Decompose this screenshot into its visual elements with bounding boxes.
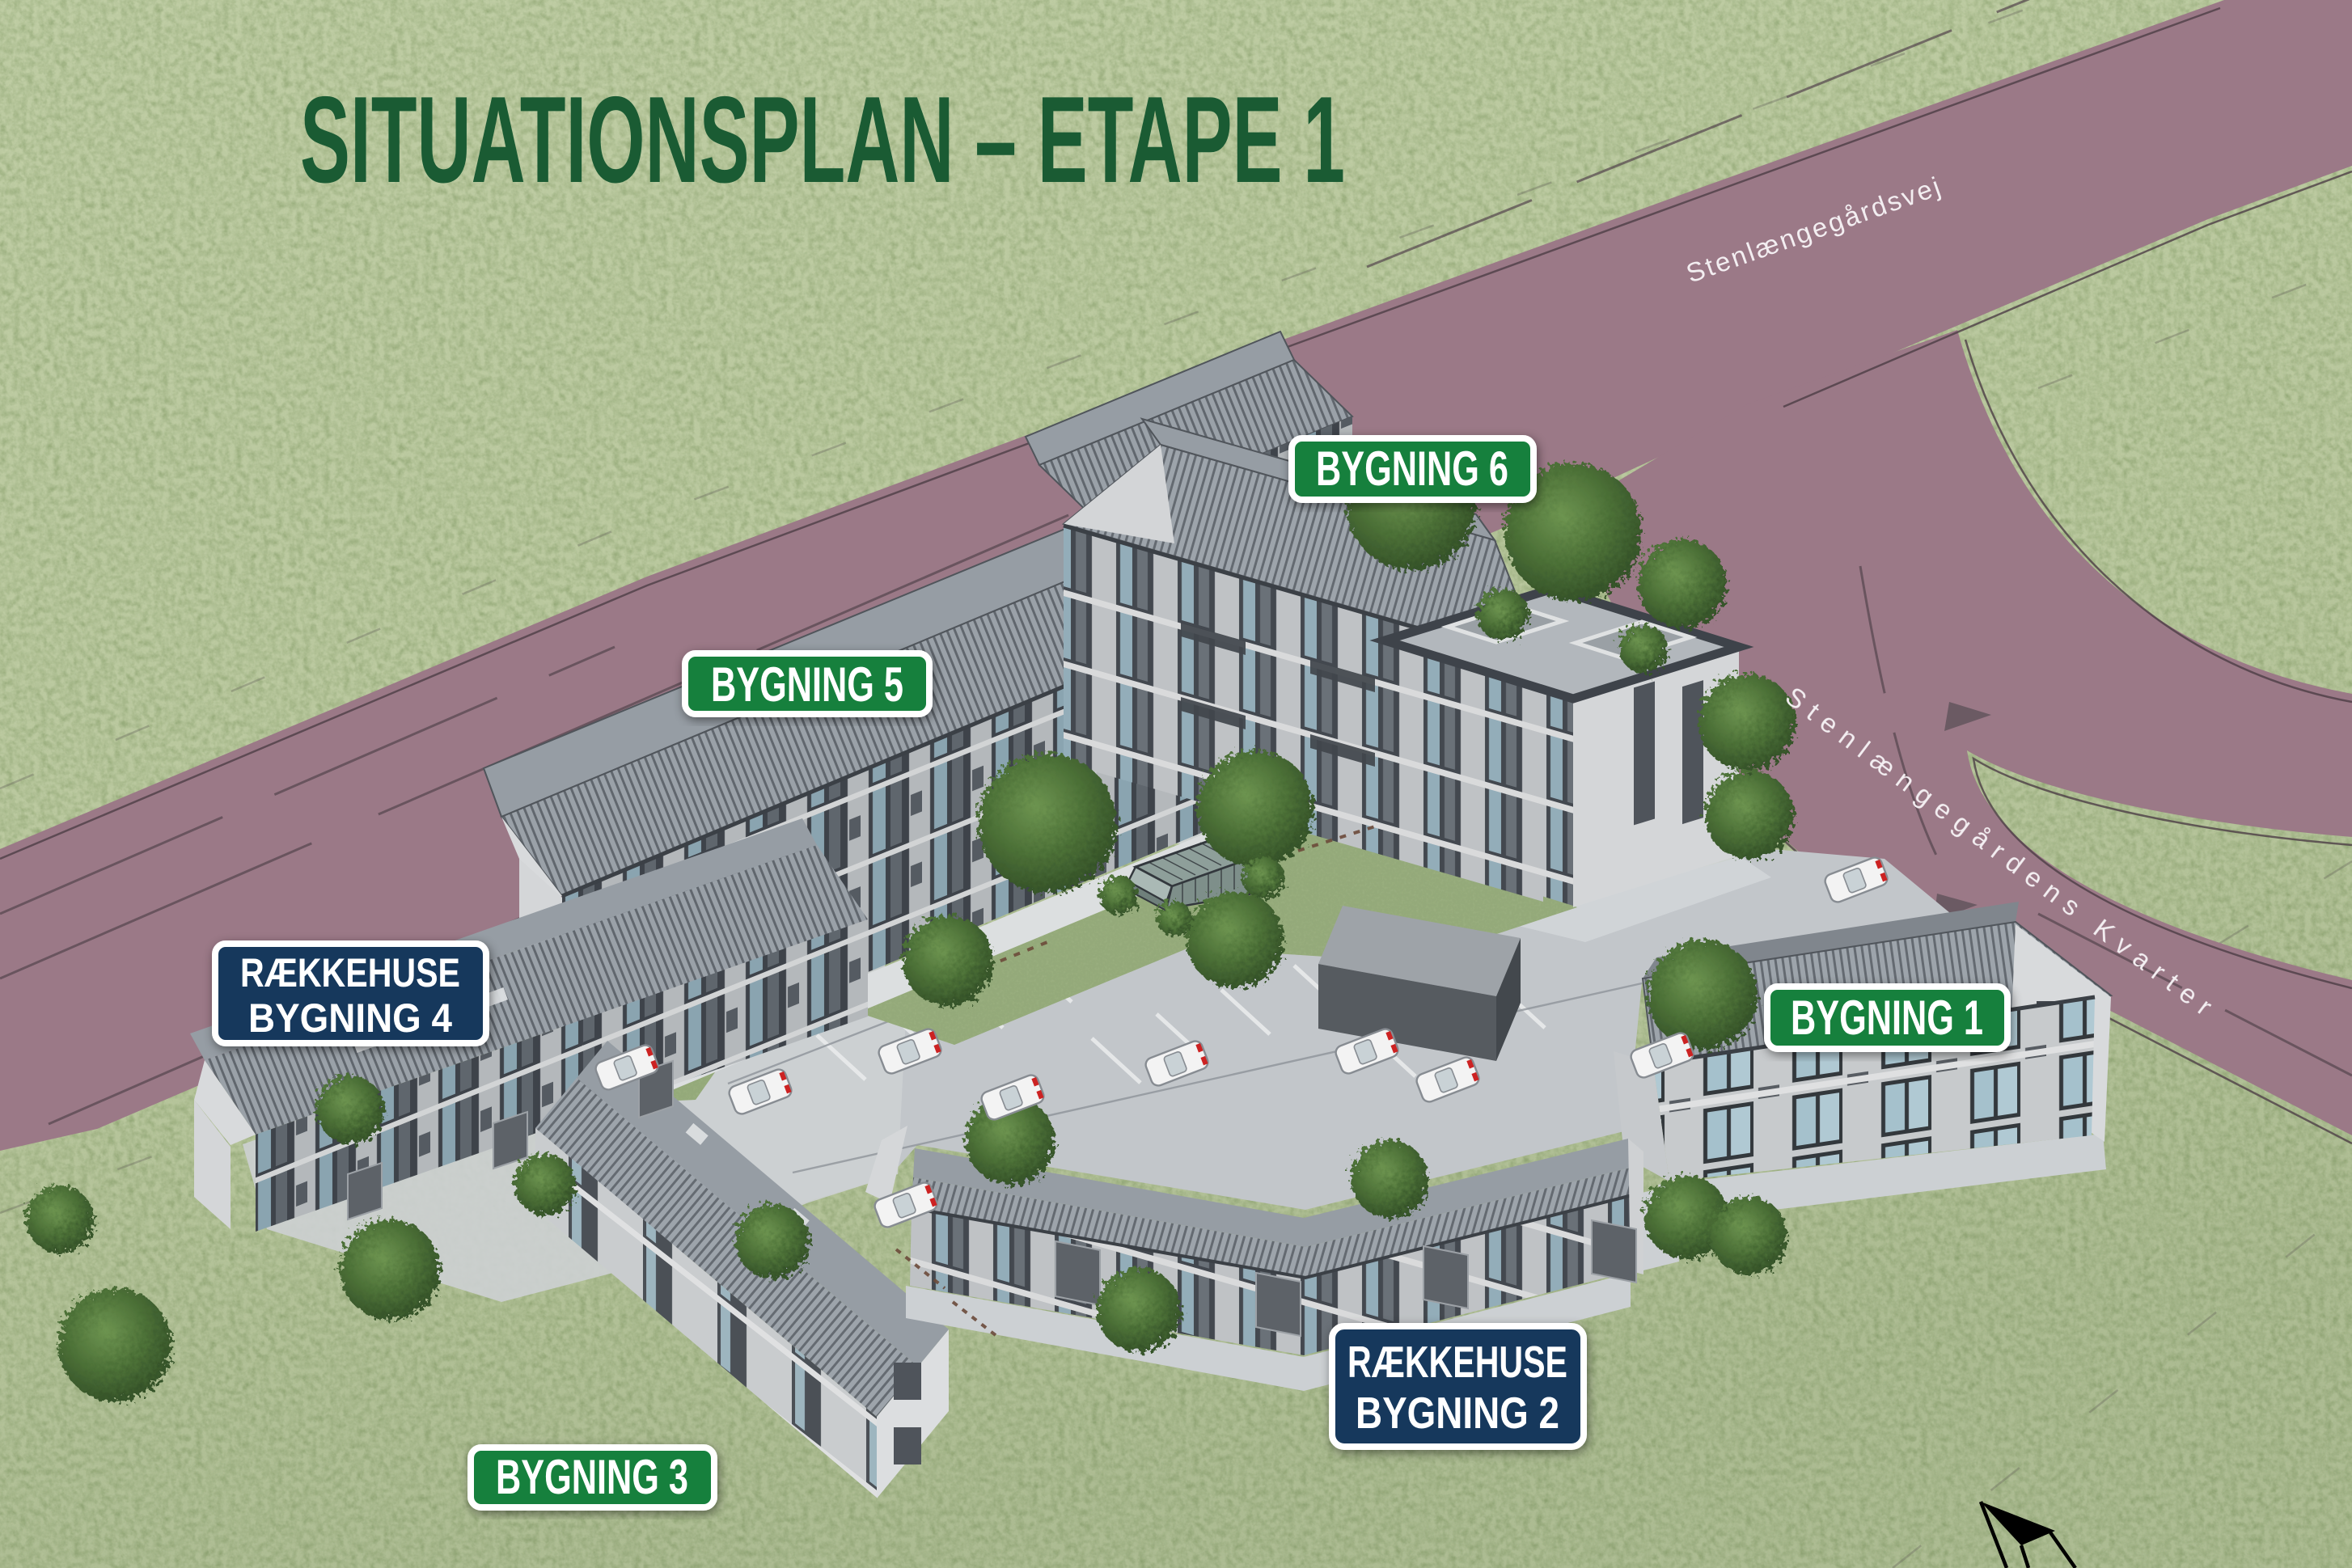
- svg-text:BYGNING 1: BYGNING 1: [1791, 991, 1983, 1045]
- svg-text:RÆKKEHUSE: RÆKKEHUSE: [240, 950, 460, 995]
- svg-text:BYGNING 5: BYGNING 5: [711, 657, 903, 712]
- svg-text:SITUATIONSPLAN – ETAPE 1: SITUATIONSPLAN – ETAPE 1: [300, 71, 1345, 209]
- svg-text:BYGNING 4: BYGNING 4: [248, 995, 452, 1041]
- svg-text:RÆKKEHUSE: RÆKKEHUSE: [1347, 1337, 1567, 1387]
- svg-text:BYGNING 3: BYGNING 3: [496, 1450, 688, 1504]
- svg-text:BYGNING 2: BYGNING 2: [1356, 1388, 1559, 1438]
- svg-text:BYGNING 6: BYGNING 6: [1316, 442, 1508, 496]
